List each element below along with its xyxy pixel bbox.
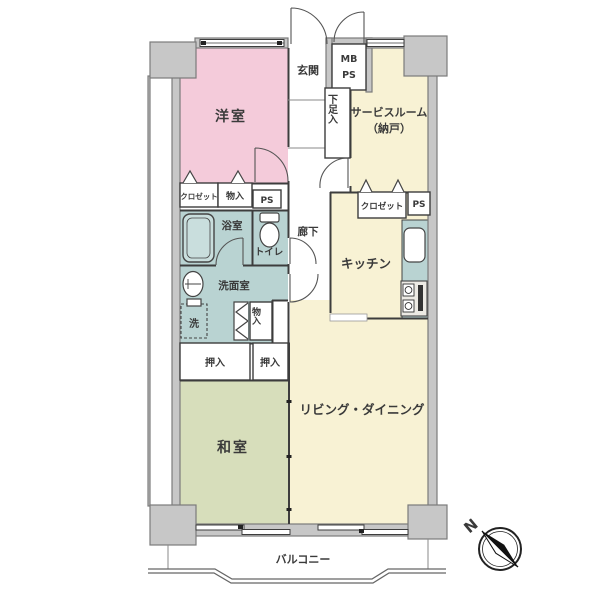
floorplan-page: N 洋室 玄関 MB PS 下足入 サービスルーム （納戸） クロゼット 物入 …: [0, 0, 600, 600]
mb-wall-left: [326, 38, 332, 92]
pillar-top-left: [150, 42, 196, 78]
pillar-top-right: [404, 36, 447, 76]
monoire-hall-label: 物入: [250, 306, 262, 326]
window-tatami-balcony-1: [196, 525, 244, 530]
outer-edge-line: [148, 76, 150, 506]
mb-ps-label: PS: [342, 70, 356, 81]
pillar-bottom-right: [408, 505, 447, 539]
window-lock-mark: [359, 529, 364, 533]
oshiire-left-label: 押入: [205, 356, 225, 369]
service-room-label-2: （納戸）: [367, 121, 411, 135]
mb-ps-box: [332, 44, 366, 90]
oshiire-right-label: 押入: [260, 356, 280, 369]
laundry-label: 洗: [189, 317, 199, 330]
closet-service-label: クロゼット: [361, 201, 404, 212]
window-mark: [277, 41, 282, 45]
bathroom-label: 浴室: [222, 219, 243, 232]
balcony-label: バルコニー: [276, 553, 331, 566]
ps-service-label: PS: [412, 200, 425, 210]
toilet-tank-icon: [260, 213, 279, 222]
window-tatami-balcony-2: [242, 530, 290, 535]
stove-icon: [401, 281, 427, 316]
washroom-label: 洗面室: [218, 279, 250, 292]
hallway-label: 廊下: [298, 225, 319, 238]
entrance-hallway-area: [288, 40, 330, 300]
window-living-balcony-1: [318, 525, 364, 530]
toilet-label: トイレ: [255, 247, 284, 258]
stove-burner-2: [403, 300, 414, 312]
window-mark: [201, 41, 206, 45]
closet-bedroom-label: クロゼット: [180, 191, 218, 201]
washer-tap-icon: [187, 299, 201, 306]
stove-grill: [418, 285, 423, 311]
mb-label: MB: [341, 54, 358, 65]
sliding-door-mark: [287, 455, 292, 458]
ps-hall-label: PS: [260, 196, 273, 206]
monoire-bedroom-label: 物入: [226, 190, 244, 202]
western-room-label: 洋室: [215, 108, 247, 125]
shoe-cabinet-label: 下足入: [326, 94, 338, 125]
kitchen-threshold: [330, 314, 367, 321]
right-wall: [428, 74, 437, 508]
top-wall-mb: [326, 38, 372, 44]
living-dining-label: リビング・ダイニング: [299, 402, 425, 417]
entrance-label: 玄関: [297, 63, 319, 77]
window-living-balcony-2: [362, 530, 408, 535]
window-lock-mark: [238, 525, 243, 529]
service-room-label-1: サービスルーム: [351, 105, 428, 119]
pillar-bottom-left: [150, 505, 196, 545]
kitchen-label: キッチン: [341, 256, 391, 271]
kitchen-sink-icon: [404, 228, 425, 262]
sliding-door-mark: [287, 508, 292, 511]
tatami-room-label: 和室: [217, 439, 249, 456]
floorplan-drawing: N 洋室 玄関 MB PS 下足入 サービスルーム （納戸） クロゼット 物入 …: [0, 0, 600, 600]
stove-burner-1: [403, 284, 414, 296]
toilet-bowl-icon: [260, 223, 279, 247]
left-wall: [172, 72, 180, 510]
sliding-door-mark: [287, 400, 292, 403]
passage-strip: [272, 300, 288, 343]
